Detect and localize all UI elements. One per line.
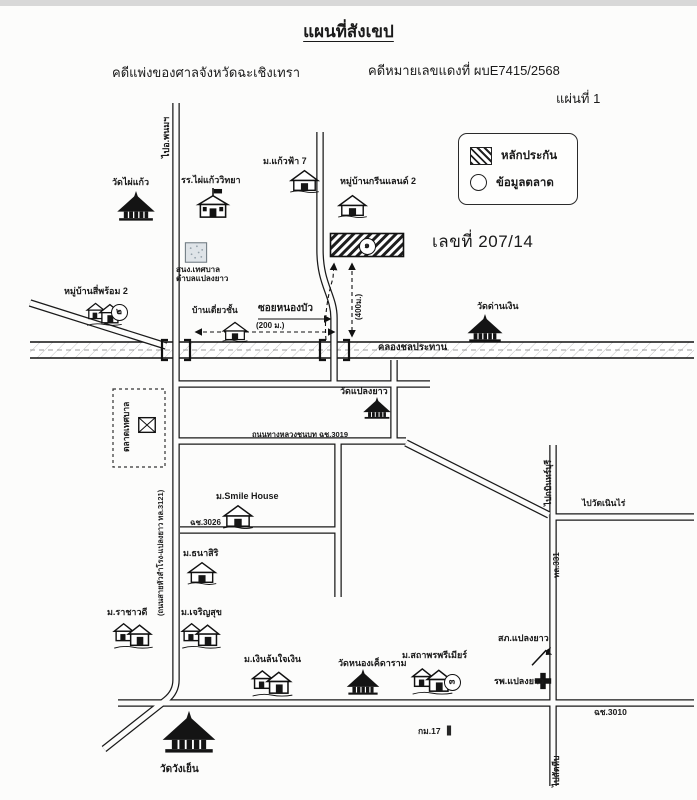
- collateral-hatch-swatch-icon: [470, 147, 492, 165]
- collateral-parcel: [331, 234, 404, 257]
- irrigation-canal: [30, 342, 694, 358]
- legend-box: หลักประกัน ข้อมูลตลาด: [458, 133, 578, 205]
- market-data-circle-icon: [470, 174, 487, 191]
- road-network: [30, 103, 694, 786]
- market-data-label: ข้อมูลตลาด: [496, 174, 554, 192]
- municipal-market-box: [113, 389, 165, 467]
- parcel-address: เลขที่ 207/14: [432, 228, 533, 255]
- sketch-map-document: แผนที่สังเขป คดีแพ่งของศาลจังหวัดฉะเชิงเ…: [0, 0, 697, 800]
- map-drawing: [0, 0, 697, 800]
- collateral-label: หลักประกัน: [501, 147, 557, 165]
